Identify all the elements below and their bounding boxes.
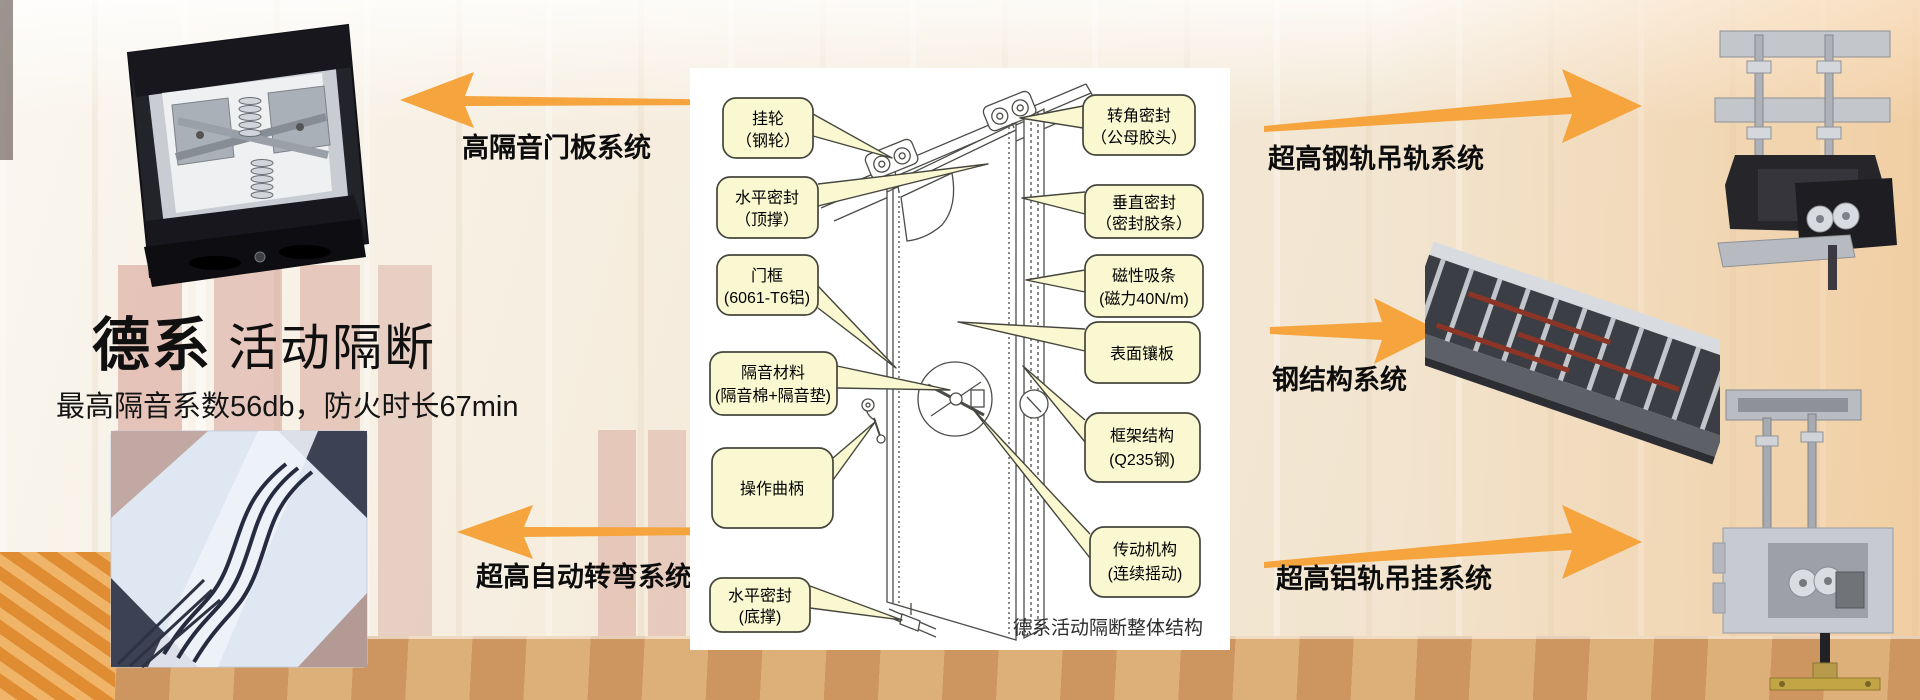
svg-text:水平密封: 水平密封 [735,189,799,207]
title-product: 活动隔断 [228,308,436,380]
page: 德系 活动隔断 最高隔音系数56db，防火时长67min 高隔音门板系统 [0,0,1920,700]
title-brand: 德系 [92,298,212,382]
svg-text:传动机构: 传动机构 [1113,541,1177,559]
svg-text:(Q235钢): (Q235钢) [1109,451,1175,469]
svg-text:（钢轮）: （钢轮） [736,132,800,150]
svg-text:表面镶板: 表面镶板 [1110,344,1174,363]
photo-aluminum-rail-hanger [1708,378,1913,693]
svg-text:挂轮: 挂轮 [752,110,784,128]
svg-text:(6061-T6铝): (6061-T6铝) [724,289,810,307]
subtitle-specs: 最高隔音系数56db，防火时长67min [56,383,519,425]
callout-corner-seal: 转角密封 （公母胶头） [1020,95,1195,155]
label-steel-rail-system: 超高钢轨吊轨系统 [1268,137,1484,176]
structure-diagram: 挂轮 （钢轮） 水平密封 （顶撑） 门框 (6061-T6铝) 隔音材料 (隔音… [690,68,1230,650]
svg-text:门框: 门框 [751,267,783,285]
svg-text:(连续摇动): (连续摇动) [1108,565,1183,583]
svg-text:（密封胶条）: （密封胶条） [1096,215,1192,233]
page-title: 德系 活动隔断 [92,298,436,382]
svg-text:(底撑): (底撑) [739,608,782,626]
svg-text:水平密封: 水平密封 [728,587,792,605]
background-edge [0,0,13,160]
callout-vertical-seal: 垂直密封 （密封胶条） [1022,185,1203,238]
photo-curved-track [108,428,370,670]
photo-door-top-mechanism [110,5,385,300]
svg-text:(磁力40N/m): (磁力40N/m) [1099,290,1189,308]
label-door-panel-system: 高隔音门板系统 [462,126,651,165]
label-aluminum-rail-system: 超高铝轨吊挂系统 [1276,557,1492,596]
svg-text:（顶撑）: （顶撑） [735,211,799,229]
callout-hanging-wheel: 挂轮 （钢轮） [723,98,892,158]
svg-text:转角密封: 转角密封 [1107,107,1171,125]
svg-text:隔音材料: 隔音材料 [741,364,805,382]
diagram-caption: 德系活动隔断整体结构 [1013,617,1203,639]
arrow-right-middle [1268,294,1442,366]
callout-operating-crank: 操作曲柄 [712,422,875,528]
callout-magnetic-strip: 磁性吸条 (磁力40N/m) [1026,255,1203,317]
callout-door-frame: 门框 (6061-T6铝) [717,255,896,368]
callout-horizontal-seal-bottom: 水平密封 (底撑) [710,578,902,632]
label-auto-turning-system: 超高自动转弯系统 [476,555,692,594]
svg-text:框架结构: 框架结构 [1110,427,1174,445]
label-steel-structure-system: 钢结构系统 [1272,358,1407,397]
svg-text:垂直密封: 垂直密封 [1112,194,1176,212]
svg-text:(隔音棉+隔音垫): (隔音棉+隔音垫) [715,387,831,405]
arrow-right-top [1262,66,1644,146]
photo-steel-rail-trolley [1700,5,1915,290]
svg-text:操作曲柄: 操作曲柄 [740,480,804,498]
background-carpet-corner [0,552,115,700]
photo-steel-structure [1425,235,1720,475]
svg-text:磁性吸条: 磁性吸条 [1112,267,1176,285]
svg-text:（公母胶头）: （公母胶头） [1091,129,1187,147]
